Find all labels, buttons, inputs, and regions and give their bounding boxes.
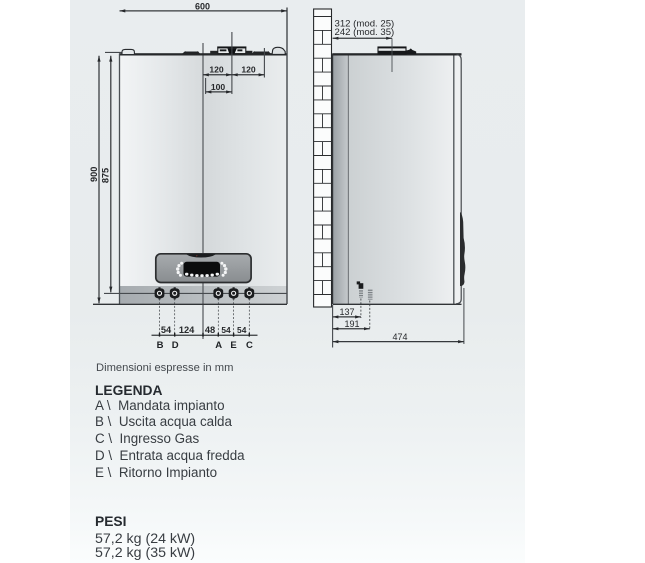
svg-text:E: E (230, 340, 236, 351)
svg-text:120: 120 (209, 65, 224, 75)
svg-text:D: D (172, 340, 179, 351)
svg-text:100: 100 (211, 82, 226, 92)
svg-text:600: 600 (195, 2, 210, 12)
svg-text:900: 900 (89, 167, 99, 182)
svg-text:474: 474 (392, 332, 407, 342)
svg-text:54: 54 (221, 325, 231, 335)
svg-text:242 (mod. 35): 242 (mod. 35) (335, 27, 395, 38)
svg-text:124: 124 (179, 325, 195, 335)
svg-text:875: 875 (101, 168, 111, 183)
svg-text:54: 54 (237, 325, 247, 335)
svg-text:48: 48 (205, 325, 215, 335)
svg-text:54: 54 (161, 325, 172, 335)
svg-text:C: C (246, 340, 253, 351)
svg-text:137: 137 (339, 307, 354, 317)
svg-text:A: A (215, 340, 222, 351)
svg-text:191: 191 (344, 319, 359, 329)
svg-text:B: B (157, 340, 164, 351)
svg-text:120: 120 (241, 65, 256, 75)
